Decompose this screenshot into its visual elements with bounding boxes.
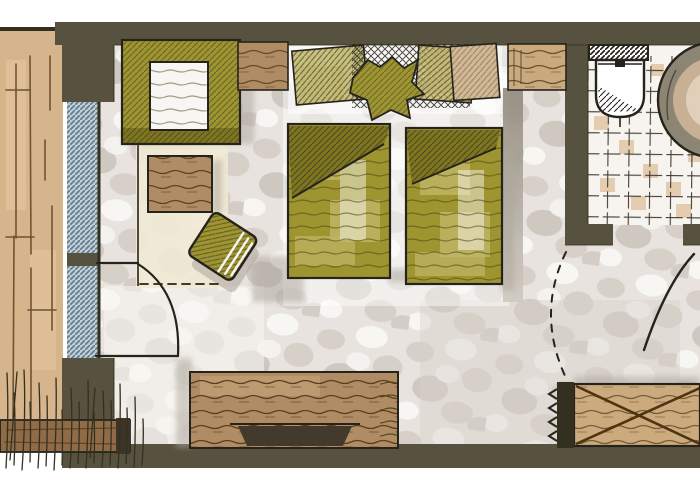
glass-hatching [67, 100, 98, 360]
balcony-deck [0, 28, 63, 430]
window-mullion [67, 253, 98, 266]
armchair [122, 40, 240, 144]
toilet-tank-hatch [589, 45, 648, 60]
sideboard-edge-hatch [380, 374, 398, 446]
wall-bathroom-stub [683, 224, 700, 245]
bed-right [406, 128, 502, 284]
floor-plan-sketch [0, 0, 700, 500]
wall-bathroom-left [565, 44, 588, 245]
nightstand [238, 42, 288, 90]
tray [238, 426, 352, 446]
sideboard [190, 372, 398, 448]
bed-left [288, 124, 390, 278]
shelf-niche [508, 44, 566, 90]
coffee-table [148, 156, 212, 212]
toilet-flush-knob [615, 60, 625, 67]
wall-left-upper [62, 24, 114, 102]
floor-plan-canvas [0, 0, 700, 500]
wardrobe-wall-stub [557, 382, 574, 448]
wall-bathroom-bottom [565, 224, 613, 245]
window [67, 100, 99, 360]
wardrobe [549, 382, 700, 448]
